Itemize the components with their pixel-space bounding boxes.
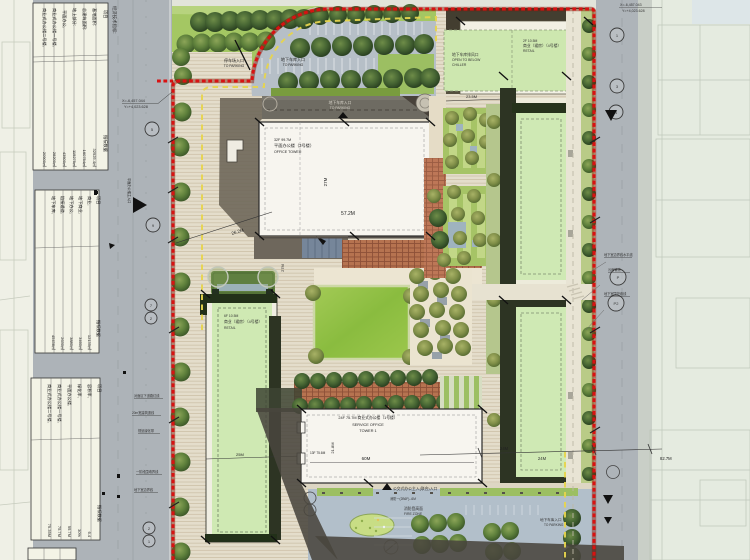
svg-text:OFFICE TOWER: OFFICE TOWER <box>274 150 302 154</box>
svg-text:链接通道,: 链接通道, <box>59 196 66 214</box>
svg-text:地下车库入口: 地下车库入口 <box>329 100 352 105</box>
svg-text:X=-6,457.043: X=-6,457.043 <box>620 3 642 7</box>
svg-text:商业,: 商业, <box>86 196 93 206</box>
svg-text:对面区下道路红线: 对面区下道路红线 <box>134 393 160 398</box>
svg-text:地下室围护墙线: 地下室围护墙线 <box>604 291 627 296</box>
svg-text:3880㎡: 3880㎡ <box>69 337 75 350</box>
svg-text:6.4: 6.4 <box>87 531 92 537</box>
svg-text:Y=+4,023.628: Y=+4,023.628 <box>124 105 148 109</box>
svg-text:75.7M: 75.7M <box>57 526 62 537</box>
svg-text:地下室边界线: 地下室边界线 <box>134 487 154 492</box>
svg-text:27M: 27M <box>280 264 285 272</box>
svg-text:2630㎡: 2630㎡ <box>60 337 66 350</box>
svg-text:20900㎡: 20900㎡ <box>42 152 48 167</box>
svg-text:32925.4㎡: 32925.4㎡ <box>92 149 98 167</box>
svg-text:地下室边界线水平线: 地下室边界线水平线 <box>604 252 633 257</box>
svg-text:X=-6,457.044: X=-6,457.044 <box>122 99 145 103</box>
svg-text:TO PARKING: TO PARKING <box>330 106 351 110</box>
svg-text:地下商业,: 地下商业, <box>77 196 84 214</box>
svg-text:停车场入口: 停车场入口 <box>224 57 244 63</box>
svg-text:OPEN TO BELOW: OPEN TO BELOW <box>452 58 481 62</box>
svg-text:容积率,: 容积率, <box>86 384 93 398</box>
svg-text:6F 10.5M: 6F 10.5M <box>224 314 238 318</box>
svg-text:商业（裙房）（4号楼）: 商业（裙房）（4号楼） <box>224 319 262 324</box>
svg-text:公交式办公主入(联合)入口: 公交式办公主入(联合)入口 <box>393 486 437 491</box>
svg-text:商业式办公楼一号楼,: 商业式办公楼一号楼, <box>56 384 63 423</box>
svg-text:污雨管线: 污雨管线 <box>608 267 622 272</box>
svg-text:2F 10.5M: 2F 10.5M <box>523 39 537 43</box>
svg-text:TO PARKING: TO PARKING <box>544 523 564 527</box>
svg-text:82.7M: 82.7M <box>660 456 672 461</box>
svg-text:商业（裙房）（4号楼）: 商业（裙房）（4号楼） <box>523 43 561 48</box>
svg-text:消防登高面: 消防登高面 <box>404 506 423 511</box>
svg-text:79.35M: 79.35M <box>47 524 52 537</box>
svg-text:Y=+4,023.628: Y=+4,023.628 <box>622 9 645 13</box>
svg-text:商业式办公楼一号楼,: 商业式办公楼一号楼, <box>51 8 58 47</box>
svg-text:总建筑面积:: 总建筑面积: <box>81 8 88 30</box>
svg-text:32F 99.7M: 32F 99.7M <box>274 138 291 142</box>
svg-text:经济技术指标:: 经济技术指标: <box>111 6 118 34</box>
svg-text:地下车库入口: 地下车库入口 <box>281 56 305 62</box>
svg-text:指标数据: 指标数据 <box>95 320 102 337</box>
svg-text:平面办公楼,: 平面办公楼, <box>66 384 73 406</box>
svg-text:99.7M: 99.7M <box>67 526 72 537</box>
svg-text:规划绿化带: 规划绿化带 <box>138 428 155 433</box>
svg-text:CHILLER: CHILLER <box>452 63 467 67</box>
svg-text:12135㎡: 12135㎡ <box>87 335 93 350</box>
svg-text:P: P <box>617 275 620 280</box>
svg-text:商业式办公楼二号楼,: 商业式办公楼二号楼, <box>41 8 48 47</box>
svg-text:地上部分:: 地上部分: <box>71 8 78 26</box>
svg-text:P2: P2 <box>614 301 620 306</box>
svg-text:23.5M: 23.5M <box>466 94 477 99</box>
svg-text:24M: 24M <box>538 456 547 461</box>
svg-text:绿化率,: 绿化率, <box>76 384 83 398</box>
svg-text:160754㎡: 160754㎡ <box>82 150 88 167</box>
svg-text:30%: 30% <box>77 529 82 537</box>
svg-text:RETAIL: RETAIL <box>224 326 236 330</box>
svg-text:13F 75.6M: 13F 75.6M <box>310 451 326 455</box>
svg-text:消防一(2B6F)--6M: 消防一(2B6F)--6M <box>390 496 416 501</box>
svg-text:商业式办公楼二号楼,: 商业式办公楼二号楼, <box>46 384 53 423</box>
svg-text:地下车库排风口: 地下车库排风口 <box>452 52 479 57</box>
svg-text:27M: 27M <box>323 177 328 186</box>
svg-text:24F 75.7M 商业式办公楼（1号楼）: 24F 75.7M 商业式办公楼（1号楼） <box>338 415 397 420</box>
svg-text:地下办公,: 地下办公, <box>68 196 75 214</box>
svg-text:TO PARKING: TO PARKING <box>283 63 304 67</box>
svg-text:45458㎡: 45458㎡ <box>51 335 57 350</box>
svg-text:21.8M: 21.8M <box>330 442 335 453</box>
svg-text:平面办公,: 平面办公, <box>61 10 68 28</box>
svg-text:25M: 25M <box>236 452 244 457</box>
svg-text:28200㎡: 28200㎡ <box>52 152 58 167</box>
svg-text:43500㎡: 43500㎡ <box>62 152 68 167</box>
svg-text:RETAIL: RETAIL <box>523 49 535 53</box>
svg-text:指标数据: 指标数据 <box>96 505 103 522</box>
svg-text:SERVICE OFFICE: SERVICE OFFICE <box>352 423 384 427</box>
svg-text:115279㎡: 115279㎡ <box>72 150 78 167</box>
svg-text:3460㎡: 3460㎡ <box>78 337 84 350</box>
svg-text:20m宽建筑退线: 20m宽建筑退线 <box>132 410 155 415</box>
svg-text:60M: 60M <box>362 456 371 461</box>
svg-text:地下车库,: 地下车库, <box>50 196 57 214</box>
svg-text:TO PARKING: TO PARKING <box>224 64 245 68</box>
svg-text:57.2M: 57.2M <box>341 211 355 217</box>
svg-text:基地面积:: 基地面积: <box>91 8 98 26</box>
svg-text:24M: 24M <box>500 446 509 451</box>
svg-text:地下车库入口: 地下车库入口 <box>540 517 562 522</box>
svg-text:TOWER 1: TOWER 1 <box>359 429 376 433</box>
svg-text:平面办公楼（3号楼）: 平面办公楼（3号楼） <box>274 142 314 149</box>
svg-text:平面办公楼主入口: 平面办公楼主入口 <box>127 178 132 204</box>
svg-text:指标数据: 指标数据 <box>102 135 109 152</box>
svg-text:一阶段围墙界线: 一阶段围墙界线 <box>136 469 159 474</box>
